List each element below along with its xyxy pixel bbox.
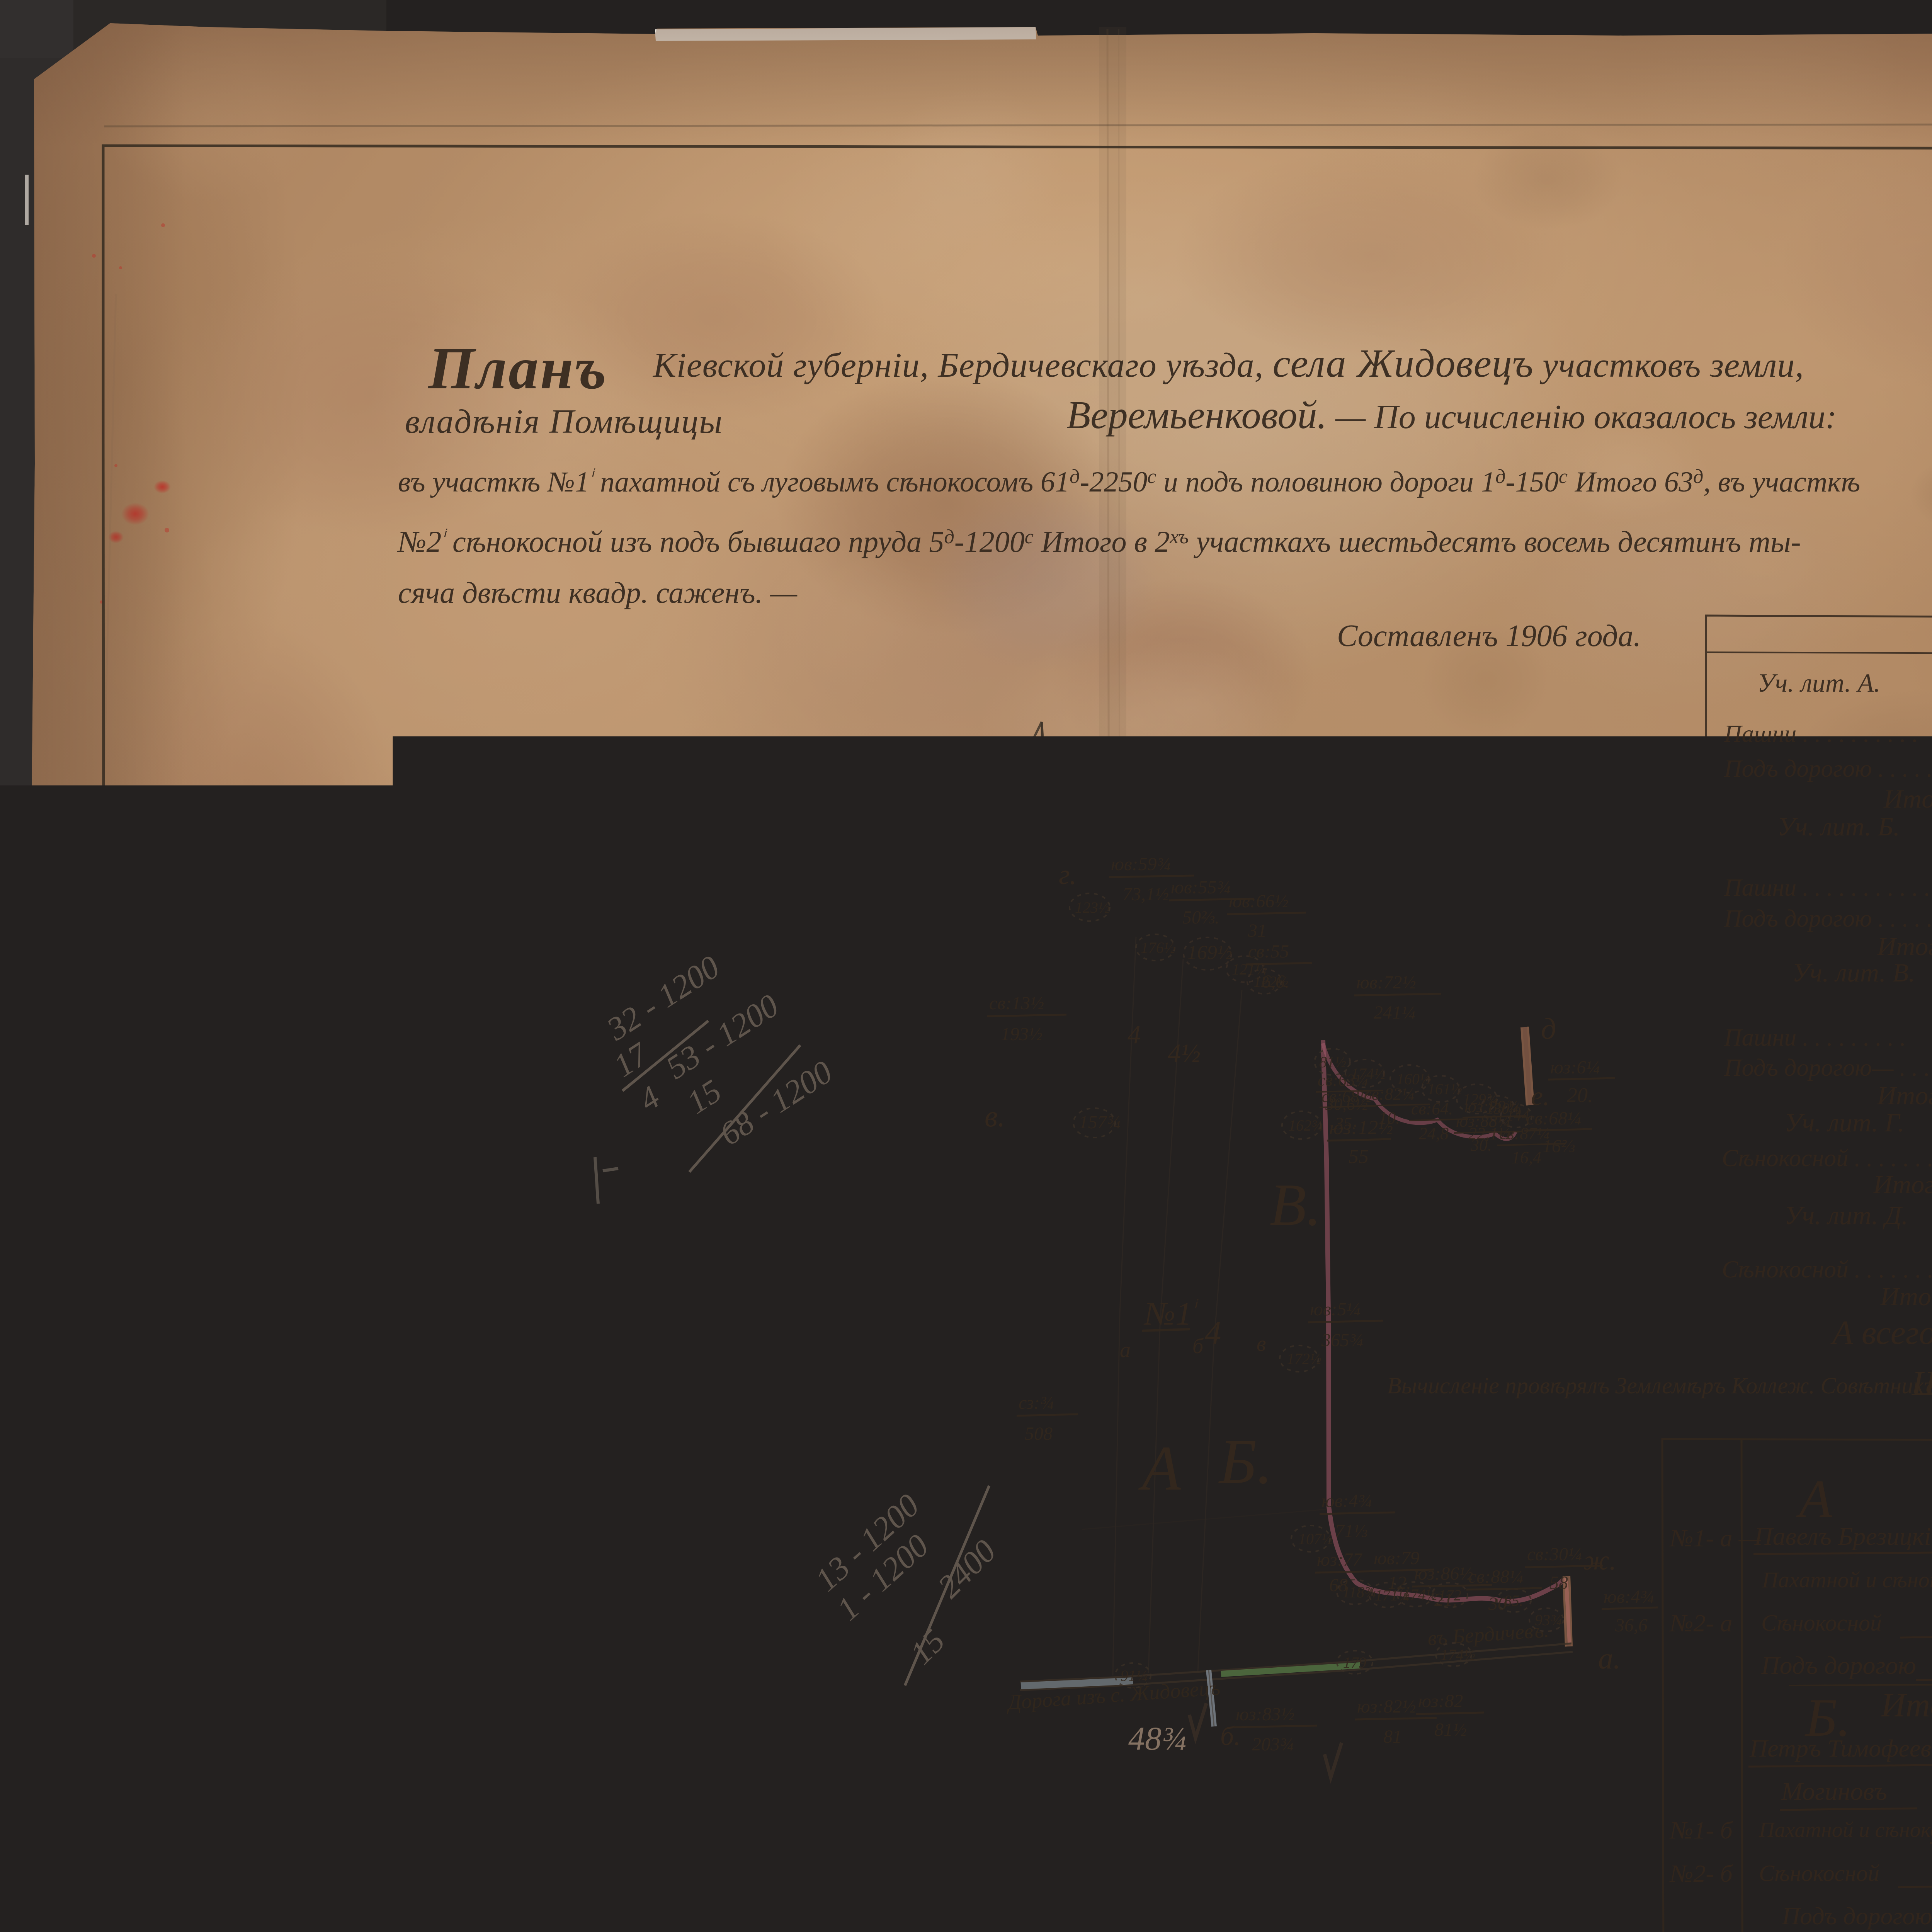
svg-text:21.: 21. [1434,1590,1458,1610]
svg-text:24,8: 24,8 [1419,1124,1449,1143]
svg-text:174½: 174½ [1440,1646,1475,1663]
svg-text:б.: б. [1220,1721,1241,1751]
svg-text:Отъ а до б Земля кр. собств.: Отъ а до б Земля кр. собств. с. Жидовецъ [170,1609,668,1640]
svg-text:58: 58 [1549,1573,1568,1593]
svg-text:в.: в. [985,1099,1005,1133]
svg-text:203¾: 203¾ [1252,1734,1294,1755]
svg-text:юв:55¾: юв:55¾ [1171,877,1231,898]
svg-text:Сѣнокосной: Сѣнокосной [1759,1861,1879,1886]
svg-text:е - ж. Земля крест. собст. с: е - ж. Земля крест. собст. с. Жидовецъ. [187,1471,680,1506]
svg-text:Планъ: Планъ [427,335,608,401]
svg-text:Итого: Итого [1877,1081,1932,1110]
svg-text:юз:83½: юз:83½ [1236,1704,1295,1725]
svg-text:владѣнія Помѣщицы: владѣнія Помѣщицы [405,403,723,440]
svg-text:д - е Земля крестьянъ дер. Ра: д - е Земля крестьянъ дер. Радзивиловки. [189,1432,698,1467]
svg-text:169½: 169½ [1187,942,1232,964]
svg-text:б - в Земля с. Пятигорки.: б - в Земля с. Пятигорки. [203,1646,500,1677]
svg-text:а.: а. [1598,1641,1621,1675]
svg-text:71⅓: 71⅓ [1335,1521,1367,1541]
svg-text:юв:66½: юв:66½ [1229,891,1289,912]
svg-text:Шелковниковъ.: Шелковниковъ. [1911,1364,1932,1403]
svg-text:Составленъ 1906 года.: Составленъ 1906 года. [1337,619,1641,653]
svg-text:31: 31 [1248,920,1267,941]
svg-text:г - а Земля мѣщанина Павла: г - а Земля мѣщанина Павла Пуздерка (онъ… [199,1733,900,1764]
svg-text:юз:89¾: юз:89¾ [1464,1097,1519,1116]
svg-text:107½: 107½ [1298,1530,1333,1548]
svg-text:172½: 172½ [1287,1350,1321,1367]
svg-text:св:55: св:55 [1248,941,1289,962]
svg-text:Кіевской губерніи, Бердичевска: Кіевской губерніи, Бердичевскаго уѣзда, … [652,341,1804,386]
svg-text:81: 81 [1383,1726,1402,1747]
svg-text:161½: 161½ [1427,1080,1462,1098]
svg-text:г.: г. [1059,859,1077,891]
svg-text:в: в [1257,1332,1266,1356]
svg-text:св:68½: св:68½ [1321,1087,1372,1106]
svg-text:Пашни . . . . . . . . . .: Пашни . . . . . . . . . . [1724,720,1918,747]
svg-text:сз:¾: сз:¾ [1019,1393,1054,1413]
svg-text:Отъ А до б Земля мѣщанина: Отъ А до б Земля мѣщанина [162,1269,505,1300]
svg-text:г - д Земля села Скрылевки.: г - д Земля села Скрылевки. [191,1391,514,1422]
svg-text:55: 55 [1349,1146,1369,1168]
svg-text:А: А [1796,1469,1832,1529]
svg-text:Имена и фамиліи пріобрѣтающихъ: Имена и фамиліи пріобрѣтающихъ землю [1695,1409,1932,1435]
svg-text:36,6: 36,6 [1615,1615,1648,1636]
svg-text:е.: е. [1531,1082,1550,1111]
svg-text:16,4: 16,4 [1512,1148,1541,1167]
svg-text:Могиновъ: Могиновъ [1781,1777,1887,1806]
svg-text:30: 30 [1488,1594,1507,1614]
svg-text:юз:86½: юз:86½ [1414,1563,1473,1584]
svg-text:А: А [1138,1433,1181,1503]
svg-text:с. Жидовецъ. —: с. Жидовецъ. — [240,1777,425,1808]
svg-text:73,1½: 73,1½ [1122,884,1169,905]
svg-text:а: а [1120,1338,1131,1362]
svg-text:Подъ дорогою . . . . .: Подъ дорогою . . . . . [1724,905,1932,932]
svg-text:6,6.: 6,6. [1262,971,1289,992]
svg-text:въ участкѣ №1ⁱ пахатной съ луг: въ участкѣ №1ⁱ пахатной съ луговымъ сѣно… [398,466,1860,498]
svg-text:№2- б: №2- б [1669,1860,1733,1887]
svg-text:Уч. лит. В.: Уч. лит. В. [1792,958,1915,987]
svg-text:22,1½: 22,1½ [1468,1124,1511,1143]
svg-text:юз:12½: юз:12½ [1329,1117,1393,1139]
svg-text:93¾: 93¾ [1535,1611,1562,1629]
svg-text:В.: В. [1270,1172,1321,1238]
svg-text:Описаніе Смежныхъ Земель.: Описаніе Смежныхъ Земель. [227,1172,624,1207]
svg-text:Подъ дорогою— . . . . .: Подъ дорогою— . . . . . [1724,1054,1932,1081]
svg-text:№2ⁱ сѣнокосной изъ подъ бывшаг: №2ⁱ сѣнокосной изъ подъ бывшаго пруда 5д… [397,525,1801,558]
svg-text:сяча двѣсти квадр. саженъ. —: сяча двѣсти квадр. саженъ. — [398,576,798,609]
svg-text:508: 508 [1025,1423,1053,1444]
svg-text:4: 4 [1128,1020,1141,1049]
svg-text:юв:5¼: юв:5¼ [1310,1299,1361,1320]
svg-text:Итого: Итого [1880,1282,1932,1311]
svg-text:юз:82½: юз:82½ [1357,1696,1416,1717]
svg-text:д: д [1541,1012,1556,1045]
svg-text:б: б [1192,1334,1204,1358]
svg-text:№1- а —: №1- а — [1669,1524,1761,1552]
svg-text:Мартыновскаго с. Жидовецъ: Мартыновскаго с. Жидовецъ [519,1264,903,1298]
svg-text:Петръ Тимофеевъ: Петръ Тимофеевъ [1749,1735,1932,1762]
svg-text:176½: 176½ [1141,939,1175,956]
svg-text:Уч. лит. А.: Уч. лит. А. [1757,668,1880,697]
svg-text:4½: 4½ [1168,1038,1201,1068]
svg-text:365¾: 365¾ [1321,1330,1363,1350]
svg-text:157¾: 157¾ [1079,1112,1121,1133]
svg-text:Уч. лит. Г.: Уч. лит. Г. [1784,1108,1904,1137]
svg-text:Б.: Б. [1218,1426,1273,1497]
svg-text:48¾: 48¾ [1128,1720,1187,1757]
svg-text:в - г Церковный хуторъ с. Жид: в - г Церковный хуторъ с. Жидовецъ [193,1351,624,1382]
svg-text:Подъ дорогою . . . . . .: Подъ дорогою . . . . . . [1724,755,1932,782]
svg-text:св:88¼: св:88¼ [1468,1566,1523,1587]
svg-text:ж.: ж. [1583,1545,1616,1576]
svg-text:юз:6¼: юз:6¼ [1550,1057,1600,1078]
svg-text:св:13½: св:13½ [989,993,1044,1014]
svg-text:юз:77: юз:77 [1317,1549,1363,1570]
svg-text:241¼: 241¼ [1374,1002,1415,1023]
svg-text:№1ⁱ: №1ⁱ [455,1228,508,1263]
svg-text:юз:82: юз:82 [1418,1691,1463,1711]
svg-text:4: 4 [1205,1315,1221,1351]
svg-text:91¼: 91¼ [1121,1667,1148,1684]
svg-text:Пахатной и сѣнокосной —: Пахатной и сѣнокосной — [1762,1567,1932,1592]
svg-text:Уч. лит. Б.: Уч. лит. Б. [1777,812,1900,841]
svg-text:68: 68 [1329,1575,1348,1595]
svg-text:Итого: Итого [1873,1170,1932,1199]
svg-text:ж - а Земля крестьянъ д. Рад: ж - а Земля крестьянъ д. Радзивиловки. [185,1509,681,1544]
svg-text:б - в Земля мѣщанина: б - в Земля мѣщанина [195,1310,454,1341]
svg-text:Уч. лит. Д.: Уч. лит. Д. [1784,1201,1908,1230]
svg-text:Итого: Итого [1877,932,1932,961]
svg-text:№1- б: №1- б [1669,1816,1733,1844]
svg-text:юв:4¾: юв:4¾ [1604,1587,1654,1607]
svg-text:123½: 123½ [1075,899,1110,916]
svg-text:юв:72½: юв:72½ [1356,972,1416,993]
svg-text:в - г Земля Товарищества кр: в - г Земля Товарищества кр. с. Жидовецъ [201,1689,697,1720]
svg-text:81½: 81½ [1434,1719,1467,1740]
svg-text:Веремьенковой. — По исчисленію: Веремьенковой. — По исчисленію оказалось… [1066,393,1837,437]
svg-text:юв:4¾: юв:4¾ [1321,1491,1372,1511]
svg-text:юв:79: юв:79 [1374,1548,1420,1568]
svg-text:с: с [1028,724,1041,757]
svg-text:Вычисленіе провѣрялъ Землемѣръ: Вычисленіе провѣрялъ Землемѣръ Коллеж. С… [1387,1373,1932,1398]
svg-text:Подъ дорогою: Подъ дорогою [1782,1902,1932,1930]
svg-text:179: 179 [1343,1654,1366,1671]
svg-text:Павелъ Брезицкій: Павелъ Брезицкій [1754,1522,1932,1551]
svg-text:Сѣнокосной: Сѣнокосной [1761,1610,1882,1636]
svg-text:Итого: Итого [1883,784,1932,813]
svg-text:Сѣнокосной . . . . . . .: Сѣнокосной . . . . . . . [1722,1145,1932,1172]
svg-text:50⅔.: 50⅔. [1182,907,1219,928]
svg-text:А всего:: А всего: [1830,1314,1932,1352]
svg-text:Пахатной и сѣнокосной: Пахатной и сѣнокосной [1759,1818,1932,1842]
svg-text:Павла Пуздерко (онъ же Пузырен: Павла Пуздерко (онъ же Пузыренко) с. Жид… [514,1311,1060,1339]
svg-text:Сѣнокосной . . . . . . .: Сѣнокосной . . . . . . . [1722,1256,1932,1283]
svg-text:Подъ дорогою: Подъ дорогою [1761,1651,1916,1680]
svg-text:162¾: 162¾ [1288,1117,1323,1134]
svg-text:Пашни . . . . . . . . . . .: Пашни . . . . . . . . . . . [1724,874,1930,901]
svg-text:№1ⁱ: №1ⁱ [1143,1296,1199,1332]
svg-text:193½: 193½ [1001,1024,1043,1044]
svg-text:20.: 20. [1567,1083,1593,1107]
svg-text:юв:59¾: юв:59¾ [1111,854,1171,874]
svg-text:Итого: Итого [1881,1687,1932,1724]
svg-text:№2ⁱ: №2ⁱ [455,1562,508,1597]
svg-text:св:64.: св:64. [1411,1099,1453,1118]
svg-text:Пашни . . . . . . . . .: Пашни . . . . . . . . . [1724,1024,1906,1051]
svg-text:св:30¼: св:30¼ [1527,1544,1582,1565]
svg-text:81½: 81½ [1319,1053,1346,1071]
svg-text:№2- а: №2- а [1669,1609,1733,1637]
svg-text:12.: 12. [1388,1573,1411,1593]
